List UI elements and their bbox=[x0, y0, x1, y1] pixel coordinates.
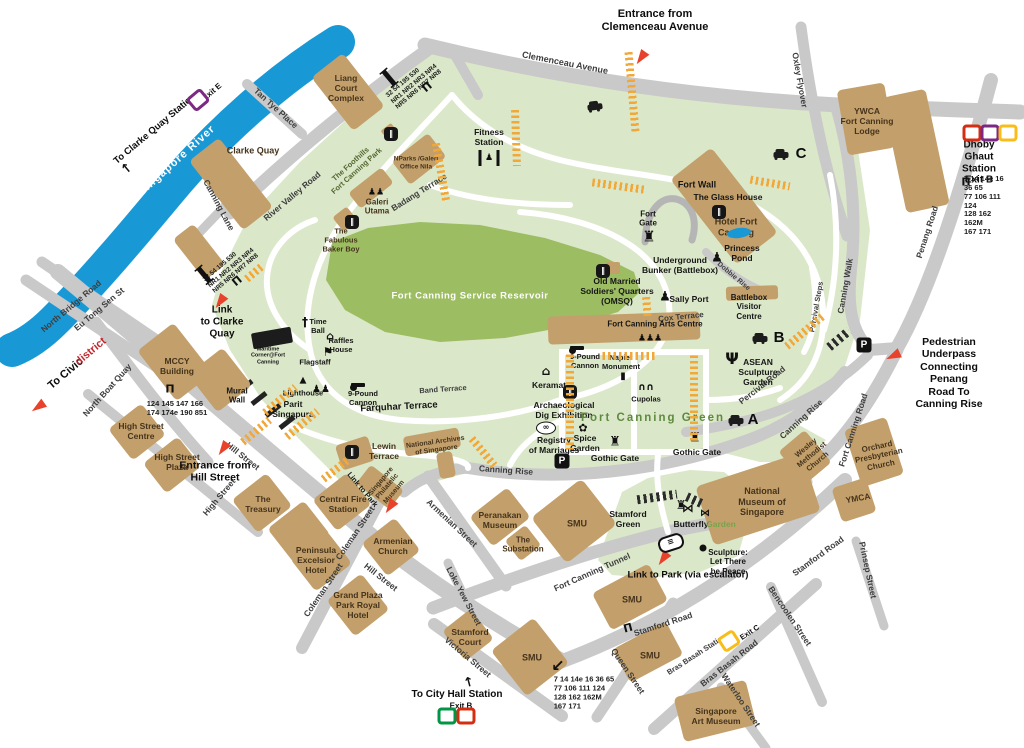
map-base-layer bbox=[0, 0, 1024, 748]
fort-canning-park-map: Clemenceau AvenueOxley FlyoverPenang Roa… bbox=[0, 0, 1024, 748]
